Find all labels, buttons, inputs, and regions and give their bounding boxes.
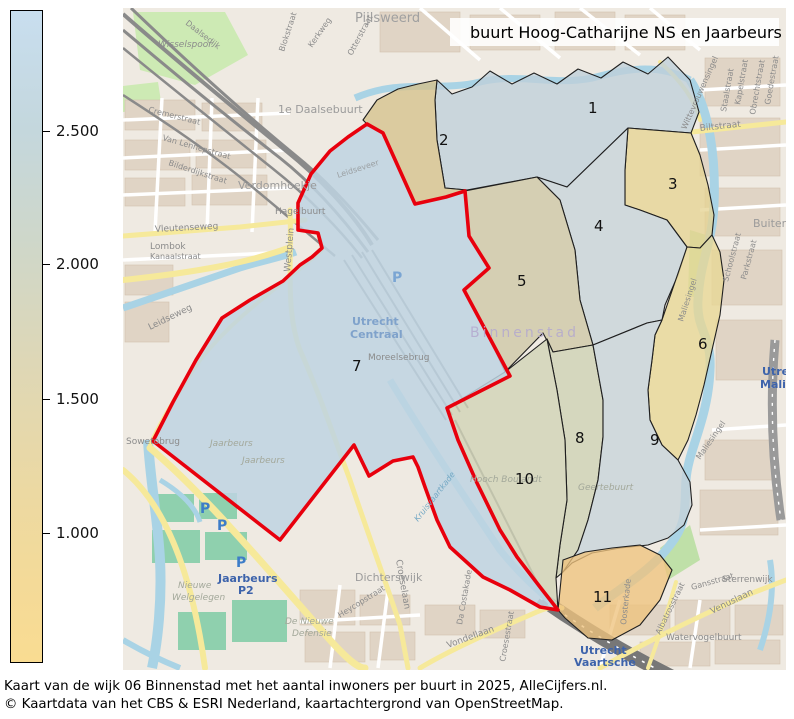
parking-icon: P xyxy=(200,501,210,517)
map-label: De Nieuwe xyxy=(285,617,334,627)
colorbar-tick-label: 2.000 xyxy=(56,257,99,272)
map-label: Dichterswijk xyxy=(355,571,423,584)
legend-label: buurt Hoog-Catharijne NS en Jaarbeurs xyxy=(470,23,782,42)
map-label: Kanaalstraat xyxy=(150,252,201,261)
map-label: Verdomhoekje xyxy=(238,179,317,192)
region-number-6: 6 xyxy=(698,335,708,353)
colorbar-tick-label: 1.000 xyxy=(56,526,99,541)
station-label-vaartsche-rijn: Rijn xyxy=(590,668,614,670)
map-label: Jaarbeurs xyxy=(208,439,253,449)
map-canvas[interactable]: Pijlsweerd Wisselspoor Daalsedijk Blokst… xyxy=(123,8,786,670)
map-label: Geertebuurt xyxy=(578,483,634,493)
colorbar-tick xyxy=(43,533,50,534)
region-number-5: 5 xyxy=(517,272,527,290)
map-label: Hagelbuurt xyxy=(275,207,326,217)
region-number-10: 10 xyxy=(515,470,534,488)
map-label: Welgelegen xyxy=(172,593,225,603)
map-label: Jaarbeurs xyxy=(240,456,285,466)
colorbar-tick xyxy=(43,131,50,132)
map-label: Nieuwe xyxy=(178,581,212,591)
map-label: Sowetobrug xyxy=(126,437,180,447)
region-number-3: 3 xyxy=(668,175,678,193)
map-legend: buurt Hoog-Catharijne NS en Jaarbeurs xyxy=(450,18,779,46)
parking-icon: P xyxy=(392,270,402,286)
colorbar-tick xyxy=(43,399,50,400)
map-label: 1e Daalsebuurt xyxy=(278,103,363,116)
region-number-4: 4 xyxy=(594,217,604,235)
region-number-1: 1 xyxy=(588,99,598,117)
station-label-utrecht-centraal: Utrecht xyxy=(352,315,399,328)
region-number-8: 8 xyxy=(575,429,585,447)
parking-icon: P xyxy=(236,555,246,571)
map-label: Moreelsebrug xyxy=(368,353,429,363)
colorbar-gradient xyxy=(10,10,43,663)
parking-jaarbeurs-p2-label: P2 xyxy=(238,584,254,597)
colorbar-tick-label: 1.500 xyxy=(56,392,99,407)
parking-icon: P xyxy=(217,518,227,534)
region-number-7: 7 xyxy=(352,357,362,375)
map-label: Binnenstad xyxy=(470,325,579,341)
map-attribution: © Kaartdata van het CBS & ESRI Nederland… xyxy=(4,697,564,712)
station-label-maliebaan: Maliebaan xyxy=(760,378,786,391)
map-label: Watervogelbuurt xyxy=(666,633,742,643)
region-number-9: 9 xyxy=(650,431,660,449)
map-caption: Kaart van de wijk 06 Binnenstad met het … xyxy=(4,679,607,694)
map-label: Buiten Wittevrouwen xyxy=(753,217,786,230)
colorbar-tick xyxy=(43,264,50,265)
station-label-utrecht-centraal: Centraal xyxy=(350,328,403,341)
map-label: Defensie xyxy=(292,629,332,639)
colorbar-tick-label: 2.500 xyxy=(56,124,99,139)
region-number-2: 2 xyxy=(439,131,449,149)
region-number-11: 11 xyxy=(593,588,612,606)
station-label-maliebaan: Utrecht xyxy=(762,365,786,378)
map-label: Lombok xyxy=(150,242,186,252)
